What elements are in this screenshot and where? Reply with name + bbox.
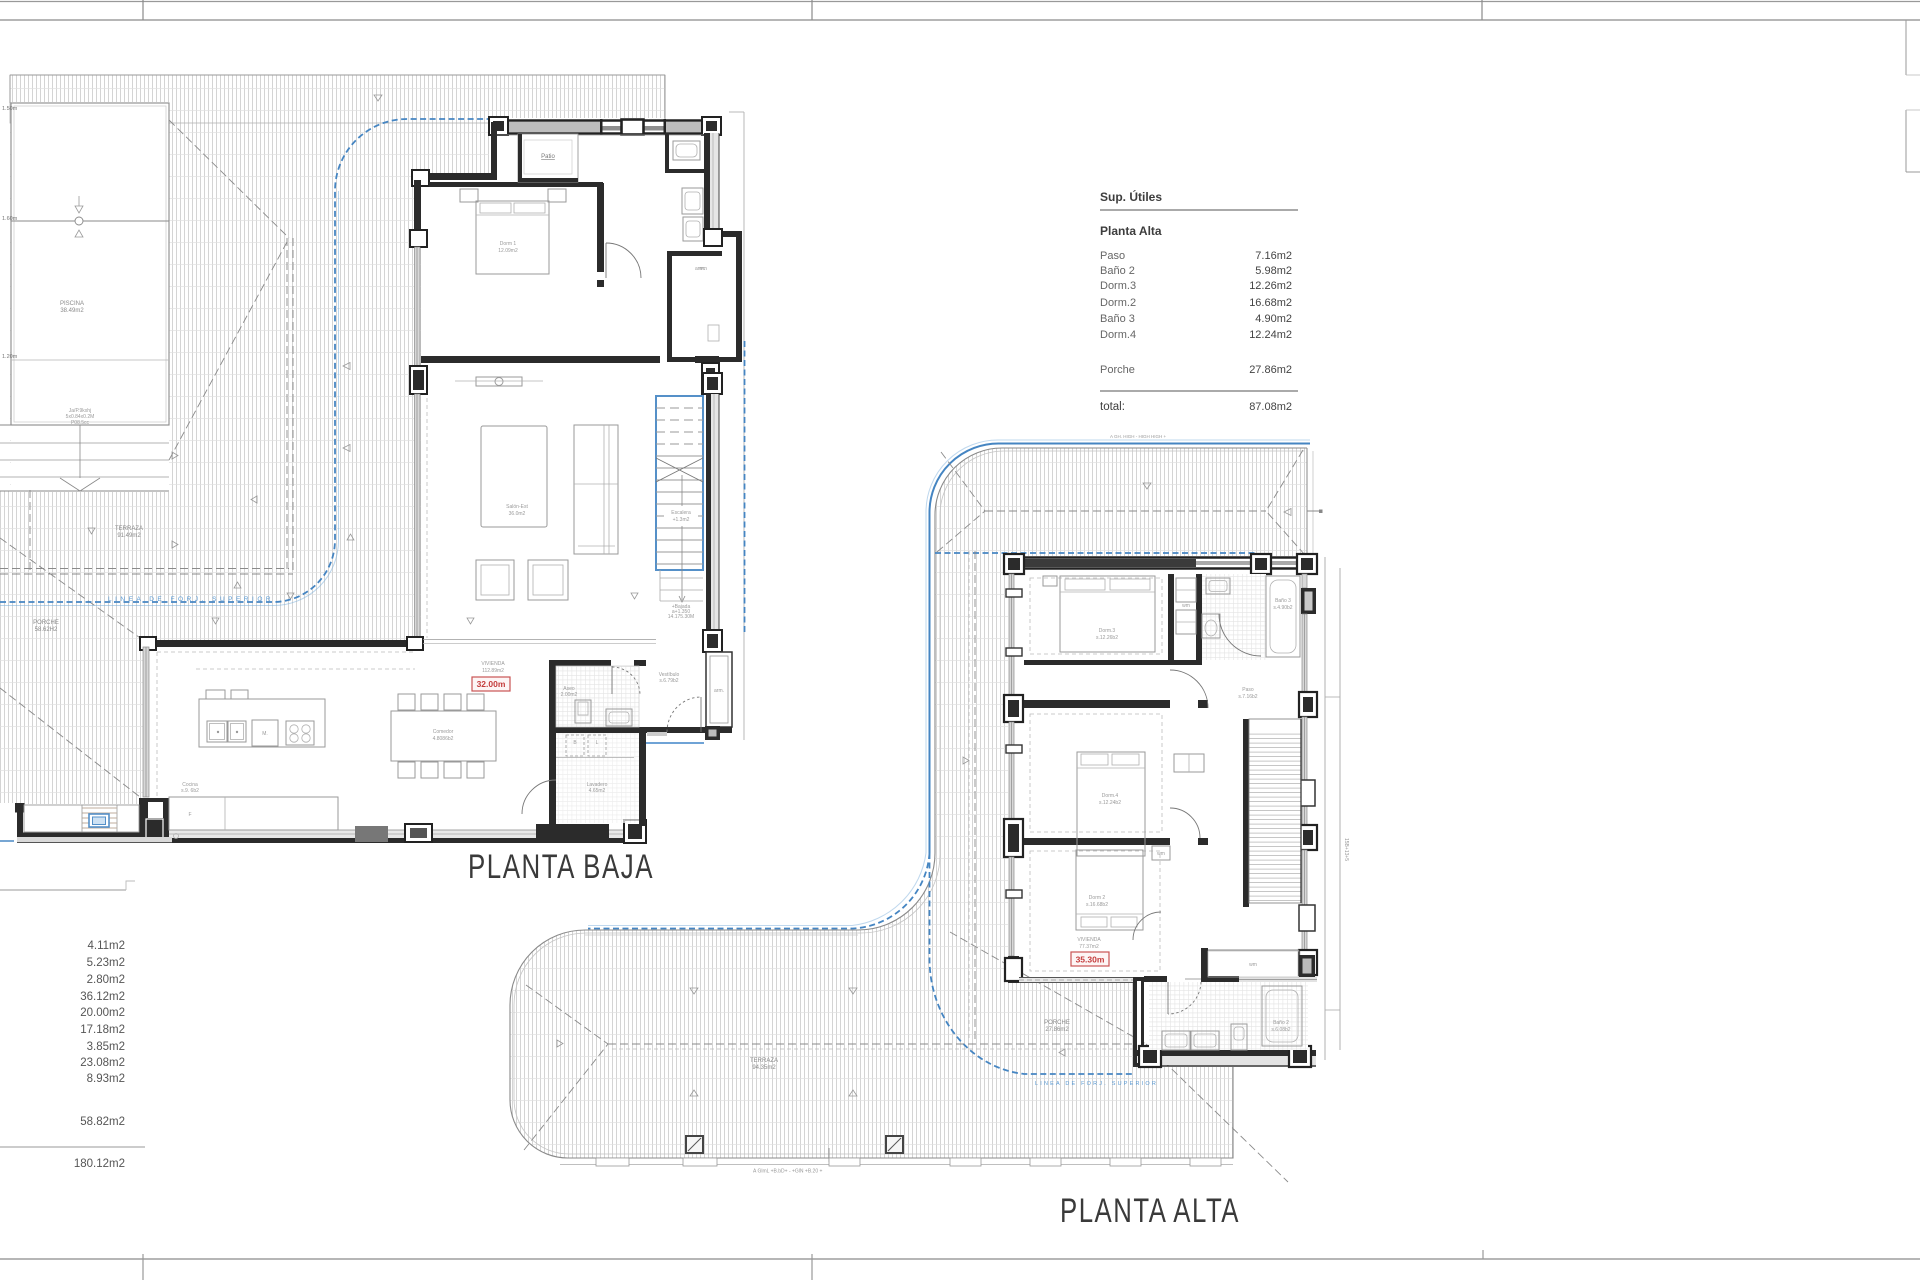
svg-text:14.175.30M: 14.175.30M	[668, 614, 694, 620]
svg-text:2.00m2: 2.00m2	[561, 692, 578, 698]
svg-text:17.18m2: 17.18m2	[80, 1024, 125, 1036]
svg-text:A GH. HIGH - HIGH HIGH +: A GH. HIGH - HIGH HIGH +	[1110, 434, 1167, 439]
svg-text:12.26m2: 12.26m2	[1249, 280, 1292, 292]
svg-text:94.35m2: 94.35m2	[752, 1065, 776, 1071]
svg-text:16.68m2: 16.68m2	[1249, 297, 1292, 309]
svg-text:Sup. Útiles: Sup. Útiles	[1100, 189, 1162, 204]
svg-text:180.12m2: 180.12m2	[74, 1158, 125, 1170]
svg-text:Dorm.2: Dorm.2	[1100, 297, 1136, 309]
svg-text:35.30m: 35.30m	[1076, 955, 1105, 965]
svg-text:20.00m2: 20.00m2	[80, 1007, 125, 1019]
svg-text:Baño 2: Baño 2	[1273, 1020, 1289, 1026]
svg-text:5.23m2: 5.23m2	[87, 957, 125, 969]
svg-text:1.60m: 1.60m	[2, 216, 18, 222]
svg-text:12.09m2: 12.09m2	[498, 248, 518, 254]
svg-text:4.90m2: 4.90m2	[1255, 313, 1292, 325]
svg-text:36.0m2: 36.0m2	[509, 511, 526, 517]
svg-text:Baño 3: Baño 3	[1275, 598, 1291, 604]
svg-text:wm: wm	[1182, 603, 1190, 609]
svg-text:87.08m2: 87.08m2	[1249, 401, 1292, 413]
svg-text:PLANTA ALTA: PLANTA ALTA	[1060, 1192, 1240, 1230]
svg-text:58.62H2: 58.62H2	[35, 627, 58, 633]
svg-text:Baño 3: Baño 3	[1100, 313, 1135, 325]
svg-text:wm: wm	[699, 266, 707, 272]
svg-text:Paso: Paso	[1242, 687, 1254, 693]
svg-text:7.16m2: 7.16m2	[1255, 250, 1292, 262]
svg-text:+1.3m2: +1.3m2	[673, 517, 690, 523]
svg-text:4.8086b2: 4.8086b2	[433, 736, 454, 742]
svg-text:Dorm.3: Dorm.3	[1100, 280, 1136, 292]
svg-text:arm.: arm.	[714, 688, 724, 694]
svg-text:PORCHE: PORCHE	[33, 620, 59, 626]
svg-text:LINEA DE FORJ. SUPERIOR: LINEA DE FORJ. SUPERIOR	[108, 596, 274, 603]
svg-text:36.12m2: 36.12m2	[80, 991, 125, 1003]
svg-text:TERRAZA: TERRAZA	[750, 1058, 778, 1064]
svg-text:12.24m2: 12.24m2	[1249, 329, 1292, 341]
svg-text:s.16.68b2: s.16.68b2	[1086, 902, 1108, 908]
svg-text:s.6.79b2: s.6.79b2	[659, 678, 678, 684]
svg-text:s.9. 6b2: s.9. 6b2	[181, 788, 199, 794]
svg-text:PISCINA: PISCINA	[60, 301, 84, 307]
svg-text:Paso: Paso	[1100, 250, 1125, 262]
svg-text:77.37m2: 77.37m2	[1079, 944, 1099, 950]
svg-text:91.49m2: 91.49m2	[117, 533, 141, 539]
svg-text:1.20m: 1.20m	[2, 354, 18, 360]
svg-text:Dorm 1: Dorm 1	[500, 241, 517, 247]
svg-text:TERRAZA: TERRAZA	[115, 526, 143, 532]
svg-text:Baño 2: Baño 2	[1100, 265, 1135, 277]
svg-text:4.11m2: 4.11m2	[87, 940, 125, 952]
svg-text:LINEA DE FORJ. SUPERIOR: LINEA DE FORJ. SUPERIOR	[1035, 1081, 1158, 1087]
svg-text:L: L	[596, 740, 599, 746]
svg-text:total:: total:	[1100, 401, 1125, 413]
svg-text:A GlmL +B.bD+ - +GlN +B.20 +: A GlmL +B.bD+ - +GlN +B.20 +	[753, 1169, 823, 1175]
svg-text:5.98m2: 5.98m2	[1255, 265, 1292, 277]
svg-text:112.89m2: 112.89m2	[482, 668, 504, 674]
svg-text:38.49m2: 38.49m2	[60, 308, 84, 314]
svg-text:Dorm.3: Dorm.3	[1099, 628, 1116, 634]
svg-text:s.6.08b2: s.6.08b2	[1271, 1027, 1290, 1033]
svg-text:Comedor: Comedor	[433, 729, 454, 735]
svg-text:s.12.26b2: s.12.26b2	[1096, 635, 1118, 641]
svg-text:F: F	[188, 812, 191, 818]
svg-text:Porche: Porche	[1100, 364, 1135, 376]
svg-text:58.82m2: 58.82m2	[80, 1116, 125, 1128]
svg-text:Dorm.4: Dorm.4	[1102, 793, 1119, 799]
svg-text:Planta Alta: Planta Alta	[1100, 224, 1162, 238]
svg-text:4.65m2: 4.65m2	[589, 788, 606, 794]
svg-text:wm: wm	[1249, 962, 1257, 968]
svg-text:s.12.24b2: s.12.24b2	[1099, 800, 1121, 806]
svg-text:15B+13+5: 15B+13+5	[1343, 838, 1349, 861]
svg-text:PORCHE: PORCHE	[1044, 1020, 1070, 1026]
svg-text:Escalera: Escalera	[671, 510, 691, 516]
svg-text:3.85m2: 3.85m2	[87, 1041, 125, 1053]
svg-text:2.80m2: 2.80m2	[87, 974, 125, 986]
svg-text:Salón-Est: Salón-Est	[506, 504, 528, 510]
svg-text:Dorm 2: Dorm 2	[1089, 895, 1106, 901]
svg-text:s.4.90b2: s.4.90b2	[1273, 605, 1292, 611]
svg-text:32.00m: 32.00m	[477, 679, 506, 689]
svg-text:27.86m2: 27.86m2	[1045, 1027, 1069, 1033]
svg-text:VIVIENDA: VIVIENDA	[481, 661, 505, 667]
svg-text:23.08m2: 23.08m2	[80, 1057, 125, 1069]
svg-text:1.50m: 1.50m	[2, 106, 18, 112]
svg-text:VIVIENDA: VIVIENDA	[1077, 937, 1101, 943]
svg-text:Dorm.4: Dorm.4	[1100, 329, 1136, 341]
svg-text:27.86m2: 27.86m2	[1249, 364, 1292, 376]
svg-text:wm: wm	[1157, 851, 1165, 857]
svg-text:PLANTA BAJA: PLANTA BAJA	[468, 848, 654, 886]
svg-text:P08.5cc: P08.5cc	[71, 420, 90, 426]
svg-text:M.: M.	[262, 731, 268, 737]
svg-text:Patio: Patio	[541, 154, 555, 160]
svg-text:s.7.16b2: s.7.16b2	[1238, 694, 1257, 700]
svg-text:8.93m2: 8.93m2	[87, 1073, 125, 1085]
